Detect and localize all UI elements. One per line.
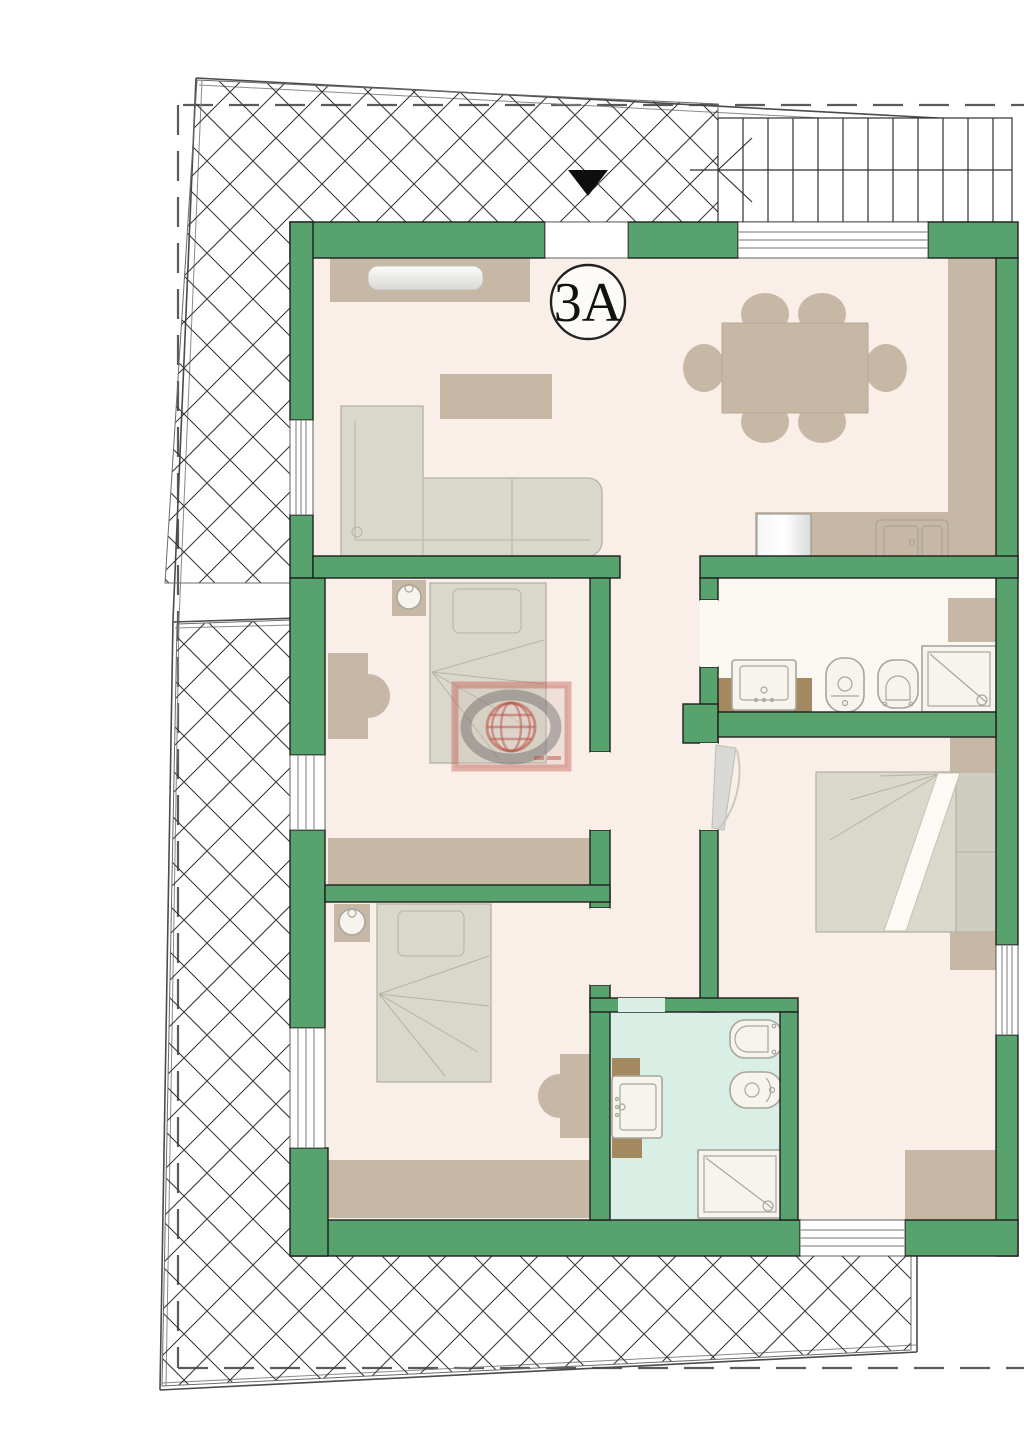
shower-tray <box>922 646 996 712</box>
watermark-globe-logo <box>455 685 568 768</box>
toilet <box>878 660 918 708</box>
wardrobe <box>905 1150 996 1220</box>
unit-label: 3A <box>554 272 623 334</box>
entrance-door-opening <box>545 222 628 258</box>
unit-label-badge: 3A <box>551 265 625 339</box>
door-opening <box>700 600 718 667</box>
window <box>290 1028 325 1148</box>
window <box>290 755 325 830</box>
watermark-fine-print <box>534 756 561 760</box>
nightstand <box>950 737 996 777</box>
toilet <box>730 1020 782 1058</box>
bath-cabinet <box>948 598 996 642</box>
tv-icon <box>368 266 483 290</box>
floor-plan-page: 3A <box>0 0 1024 1454</box>
single-bed <box>377 904 491 1082</box>
double-bed <box>816 772 996 932</box>
wardrobe <box>328 1160 590 1218</box>
desk <box>328 653 368 739</box>
door-opening <box>590 752 610 830</box>
window <box>290 420 313 515</box>
hallway-floor <box>610 556 700 1012</box>
window <box>800 1220 905 1256</box>
coffee-table <box>440 374 552 419</box>
nightstand <box>950 930 996 970</box>
door-opening <box>618 998 665 1012</box>
window <box>996 945 1018 1035</box>
wardrobe <box>328 838 590 886</box>
vanity-counter <box>612 1136 642 1158</box>
bidet <box>730 1072 782 1108</box>
staircase <box>690 118 1012 222</box>
floor-plan-drawing: 3A <box>0 0 1024 1454</box>
window <box>738 222 928 258</box>
door-opening <box>590 908 610 985</box>
washbasin <box>732 660 796 710</box>
shower-tray <box>698 1150 782 1218</box>
bidet <box>826 658 864 712</box>
washbasin <box>612 1076 662 1138</box>
